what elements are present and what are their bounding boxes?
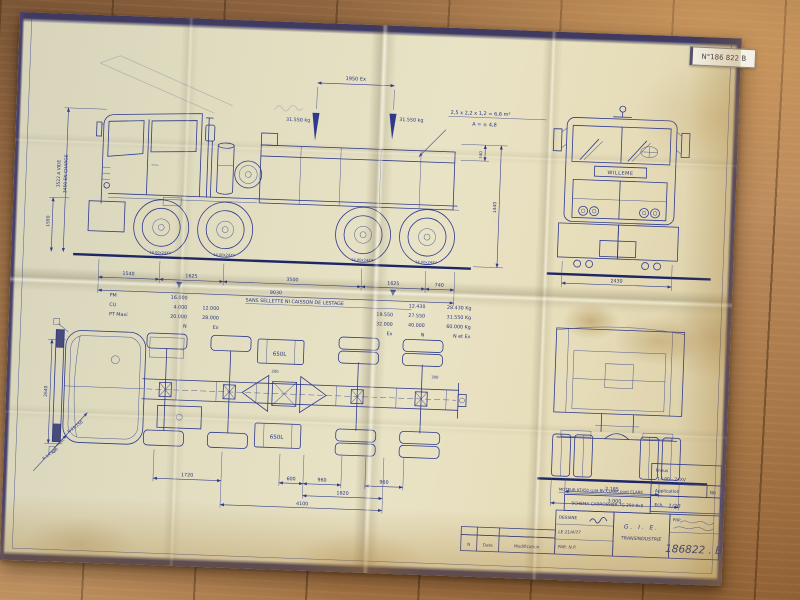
tire-size-label: 14.00x24XV xyxy=(149,250,172,255)
cell: 12.430 xyxy=(409,303,426,310)
side-wheels xyxy=(133,199,456,266)
load-value: 31.550 kg xyxy=(286,117,310,124)
dim-label: 1540 xyxy=(122,271,134,277)
dim-label: 1625 xyxy=(387,281,399,287)
brand-nameplate: WILLEME xyxy=(607,170,633,177)
tire-size-label: 14.00x24XV xyxy=(213,253,236,258)
dim-label: 960 xyxy=(379,479,388,485)
scale-label: Ech. xyxy=(654,502,664,508)
revision-strip: N Date Modification xyxy=(461,527,556,554)
hazard-bumper-right xyxy=(617,225,678,261)
cell: 20.000 xyxy=(170,314,187,321)
left-mirror xyxy=(553,129,562,151)
row-label: PM xyxy=(110,292,117,298)
dim-2640: 2640 xyxy=(43,385,49,397)
dim-1820: 1820 xyxy=(336,490,348,496)
nb-label: Nb xyxy=(710,490,717,496)
scale-value: 1/20 xyxy=(668,504,681,510)
pencil-sketch xyxy=(99,55,235,114)
dim-label: 960 xyxy=(317,477,326,483)
pencil-note xyxy=(275,105,303,112)
rev-col-modification: Modification xyxy=(514,543,540,549)
cell: 16.000 xyxy=(171,295,188,302)
turning-radius: R 14.300 xyxy=(41,446,59,461)
engine-spec-line: MOTEUR KT450 cplé BV CLARK pont CLARK xyxy=(559,487,644,495)
dim-300: 300 xyxy=(431,374,439,379)
prp-label: PRP xyxy=(673,517,681,522)
rev-col-n: N xyxy=(467,542,470,547)
row-label: PT Maxi xyxy=(109,311,128,318)
drawing-number: 186822 . B xyxy=(665,543,723,557)
pneus-label: Pneus xyxy=(656,468,669,473)
ground-line xyxy=(73,254,471,269)
application-label: Application xyxy=(655,488,680,495)
pneus-value: 14.00 - 24XV xyxy=(657,476,686,483)
cell: Ex xyxy=(213,325,219,331)
cell: 32.000 xyxy=(376,321,393,328)
area-note: A = ± 4,8 xyxy=(472,122,497,129)
dim-200: 200 xyxy=(271,368,279,373)
cell: Ex xyxy=(386,331,392,337)
cell: 60.000 Kg xyxy=(446,324,471,331)
title-block: Pneus 14.00 - 24XV Application Nb Ech. 1… xyxy=(554,460,725,560)
dim-width: 2430 xyxy=(610,278,622,284)
cell: 28.430 Kg xyxy=(447,305,472,312)
cell: 4.000 xyxy=(173,304,187,310)
dessine-label: DESSINE xyxy=(559,515,578,521)
dim-total: 9030 xyxy=(270,290,282,296)
sticker-label: N°186 822 B xyxy=(701,52,746,62)
front-view-truck: WILLEME 2430 xyxy=(546,104,717,293)
plan-extension-lines xyxy=(152,449,404,514)
beacon-light xyxy=(620,106,626,112)
cell: 31.550 Kg xyxy=(446,314,471,321)
company-name: TRANSINDUSTRIE xyxy=(621,535,662,542)
table-note: SANS SELLETTE NI CAISSON DE LESTAGE xyxy=(245,297,344,307)
date-label: LE 21/4/77 xyxy=(558,529,581,535)
blueprint-sheet: 14.00x24XV 14.00x24XV 14.00x24XV 14.00x2… xyxy=(0,12,742,586)
tire-size-label: 14.00x24XV xyxy=(415,260,438,265)
company-initials: G. I. E. xyxy=(624,524,659,531)
dim-label: 1720 xyxy=(181,472,193,478)
rev-col-date: Date xyxy=(483,542,494,547)
cell: 28.000 xyxy=(202,315,219,322)
schema-title: SCHEMA CARROSSIER TG 250 8x8 xyxy=(571,501,643,509)
lower-front-view: 2.185 3.000 xyxy=(536,324,713,511)
hazard-bumper xyxy=(88,201,125,232)
cell: N xyxy=(421,332,425,338)
drawing-number-sticker: N°186 822 B xyxy=(689,46,756,68)
tire-size-label: 14.00x24XV xyxy=(351,258,374,263)
cell: 19.550 xyxy=(376,312,393,319)
dim-label: 740 xyxy=(435,282,444,288)
load-arrow xyxy=(311,113,319,141)
row-label: CU xyxy=(109,302,117,308)
cell: 27.550 xyxy=(408,313,425,320)
tank-capacity: 650L xyxy=(270,434,285,441)
drafter-label: PAR: N.P. xyxy=(558,544,577,550)
dim-340: 340 xyxy=(478,151,483,159)
dim-4100: 4100 xyxy=(296,501,308,507)
dim-label: 600 xyxy=(286,476,295,482)
signature xyxy=(590,517,607,523)
dim-label: 3500 xyxy=(286,277,298,283)
plan-view-chassis: 650L 650L 200 300 xyxy=(32,318,468,517)
height-empty: 3522 A VIDE xyxy=(56,160,63,188)
cell: N xyxy=(183,324,187,330)
dim-label: 1625 xyxy=(185,273,197,279)
technical-drawing: 14.00x24XV 14.00x24XV 14.00x24XV 14.00x2… xyxy=(0,12,742,586)
dim-1950: 1950 Ex xyxy=(345,76,366,83)
photo-scene: 14.00x24XV 14.00x24XV 14.00x24XV 14.00x2… xyxy=(0,0,800,600)
height-loaded: 3450 EN CHARGE xyxy=(62,154,69,193)
right-mirror xyxy=(681,133,690,157)
dim-1590: 1590 xyxy=(45,215,51,227)
dim-1440: 1440 xyxy=(492,202,498,214)
cell: 12.000 xyxy=(202,305,219,312)
cell: N et Ex xyxy=(453,334,471,341)
turning-radius: R 13.150 xyxy=(66,419,84,434)
cell: 40.000 xyxy=(408,322,425,329)
side-view-truck: 14.00x24XV 14.00x24XV 14.00x24XV 14.00x2… xyxy=(43,53,548,309)
tank-capacity: 650L xyxy=(273,351,288,358)
load-arrow xyxy=(389,114,397,140)
load-value: 31.550 kg xyxy=(399,117,423,124)
ground-line xyxy=(547,273,711,279)
